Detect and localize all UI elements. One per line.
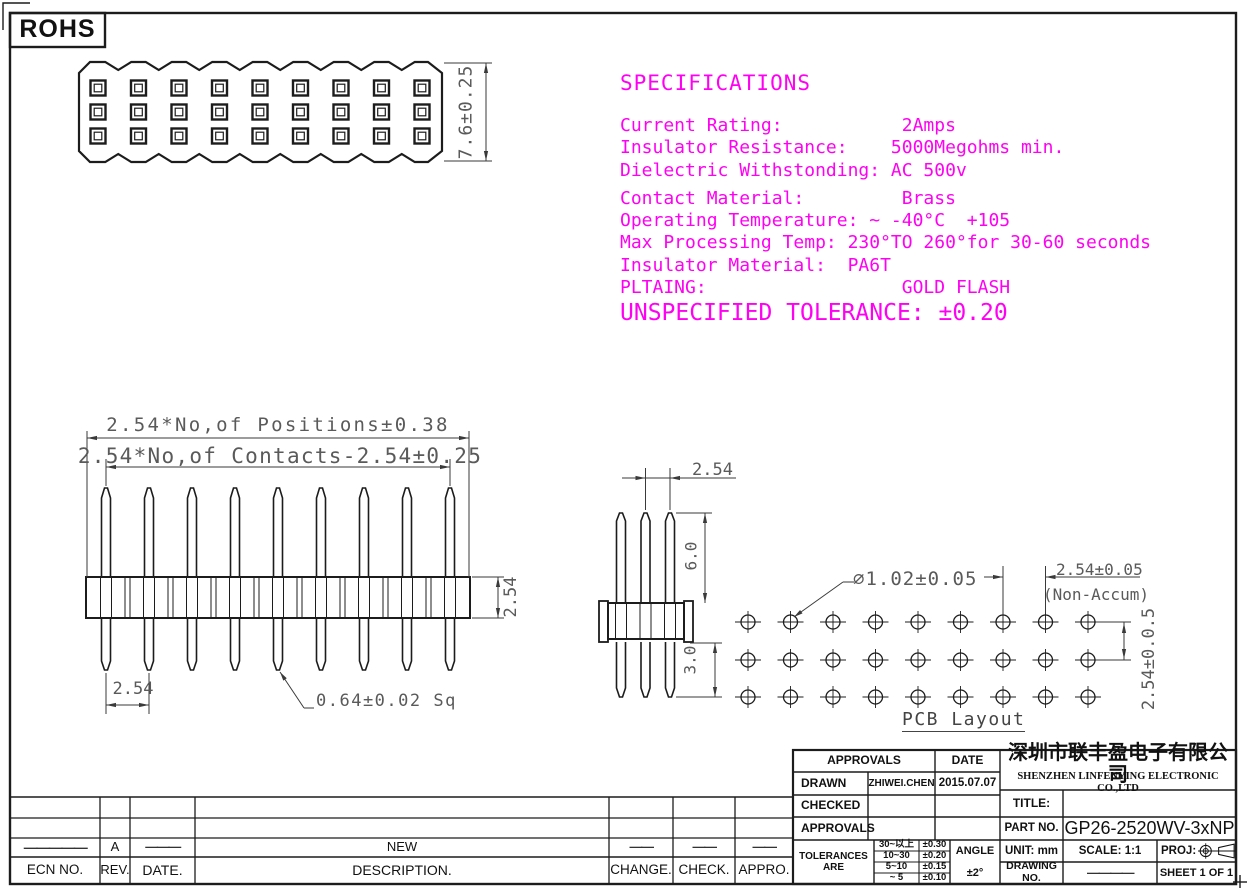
- date-header: DATE: [935, 750, 1000, 772]
- dim-pin-square: 0.64±0.02 Sq: [316, 691, 457, 711]
- company-name-en: SHENZHEN LINFENYING ELECTRONIC CO.,LTD: [1000, 776, 1236, 789]
- proj-label: PROJ:: [1161, 845, 1196, 858]
- part-no-value: GP26-2520WV-3xNP: [1063, 817, 1236, 840]
- engineering-drawing-page: ROHS SPECIFICATIONS Current Rating: 2Amp…: [0, 0, 1247, 888]
- drawn-label: DRAWN: [801, 772, 868, 795]
- projection-symbol-icon: [1198, 842, 1236, 860]
- dim-hole-diameter: ∅1.02±0.05: [853, 568, 977, 590]
- unit-label: UNIT: mm: [1000, 840, 1063, 862]
- spec-line-insulator-resistance: Insulator Resistance: 5000Megohms min.: [620, 137, 1064, 158]
- angle-label: ANGLE: [950, 840, 1000, 862]
- dim-front-pitch: 2.54: [692, 460, 733, 480]
- dim-hole-pitch-v: 2.54±0.0.5: [1139, 608, 1159, 710]
- front-view: [599, 468, 736, 697]
- dim-hole-pitch-h-note: (Non-Accum): [1043, 585, 1149, 604]
- checked-label: CHECKED: [801, 795, 868, 817]
- rev-row-check-dash: ——: [673, 838, 735, 857]
- rev-header-ecn: ECN NO.: [10, 857, 100, 884]
- dim-hole-pitch-h: 2.54±0.05: [1056, 560, 1143, 579]
- rev-row-rev-value: A: [100, 838, 130, 857]
- tolerance-value-3: ±0.10: [919, 873, 950, 884]
- dim-top-view-height: 7.6±0.25: [456, 65, 477, 160]
- approvals-header: APPROVALS: [793, 750, 935, 772]
- rev-header-date: DATE.: [130, 857, 195, 884]
- sheet-label: SHEET 1 OF 1: [1157, 862, 1236, 884]
- tolerances-label: TOLERANCES ARE: [793, 840, 874, 884]
- scale-label: SCALE: 1:1: [1063, 840, 1157, 862]
- dim-positions: 2.54*No,of Positions±0.38: [106, 414, 449, 436]
- spec-line-operating-temp: Operating Temperature: ~ -40°C +105: [620, 210, 1010, 231]
- rev-row-date-dash: ———: [130, 838, 195, 857]
- rev-header-check: CHECK.: [673, 857, 735, 884]
- spec-line-plating: PLTAING: GOLD FLASH: [620, 277, 1010, 298]
- rev-header-appro: APPRO.: [735, 857, 793, 884]
- dim-pin-length-below: 3.0: [681, 646, 700, 675]
- pcb-layout-caption: PCB Layout: [902, 709, 1025, 732]
- spec-line-dielectric: Dielectric Withstonding: AC 500v: [620, 160, 967, 181]
- rev-row-change-dash: ——: [609, 838, 673, 857]
- dim-pin-pitch: 2.54: [113, 679, 154, 699]
- drawing-no-dash: ————: [1063, 862, 1157, 884]
- spec-line-contact-material: Contact Material: Brass: [620, 188, 956, 209]
- part-no-label: PART NO.: [1000, 817, 1063, 840]
- drawn-name: ZHIWEI.CHEN: [868, 772, 935, 795]
- rev-header-change: CHANGE.: [609, 857, 673, 884]
- spec-title: SPECIFICATIONS: [620, 71, 811, 95]
- spec-line-processing-temp: Max Processing Temp: 230°TO 260°for 30-6…: [620, 232, 1151, 253]
- drawing-no-label: DRAWING NO.: [1000, 862, 1063, 884]
- rev-header-description: DESCRIPTION.: [195, 857, 609, 884]
- drawn-date: 2015.07.07: [935, 772, 1000, 795]
- spec-line-insulator-material: Insulator Material: PA6T: [620, 255, 891, 276]
- angle-value: ±2°: [950, 862, 1000, 884]
- tolerance-range-3: ~ 5: [874, 873, 919, 884]
- rev-header-rev: REV.: [100, 857, 130, 884]
- rev-row-ecn-dash: —————: [10, 838, 100, 857]
- dim-row-pitch: 2.54: [501, 577, 521, 618]
- dim-contacts: 2.54*No,of Contacts-2.54±0.25: [78, 444, 482, 468]
- projection-cell: PROJ:: [1161, 840, 1236, 862]
- spec-line-current-rating: Current Rating: 2Amps: [620, 115, 956, 136]
- rev-row-description: NEW: [195, 838, 609, 857]
- top-view: [79, 62, 492, 162]
- dim-pin-length-above: 6.0: [682, 542, 701, 571]
- rev-row-appro-dash: ——: [735, 838, 793, 857]
- approvals-label: APPROVALS: [801, 817, 871, 840]
- rohs-badge: ROHS: [10, 13, 105, 47]
- side-view: [86, 431, 504, 714]
- spec-tolerance-note: UNSPECIFIED TOLERANCE: ±0.20: [620, 300, 1008, 326]
- title-label: TITLE:: [1000, 790, 1063, 817]
